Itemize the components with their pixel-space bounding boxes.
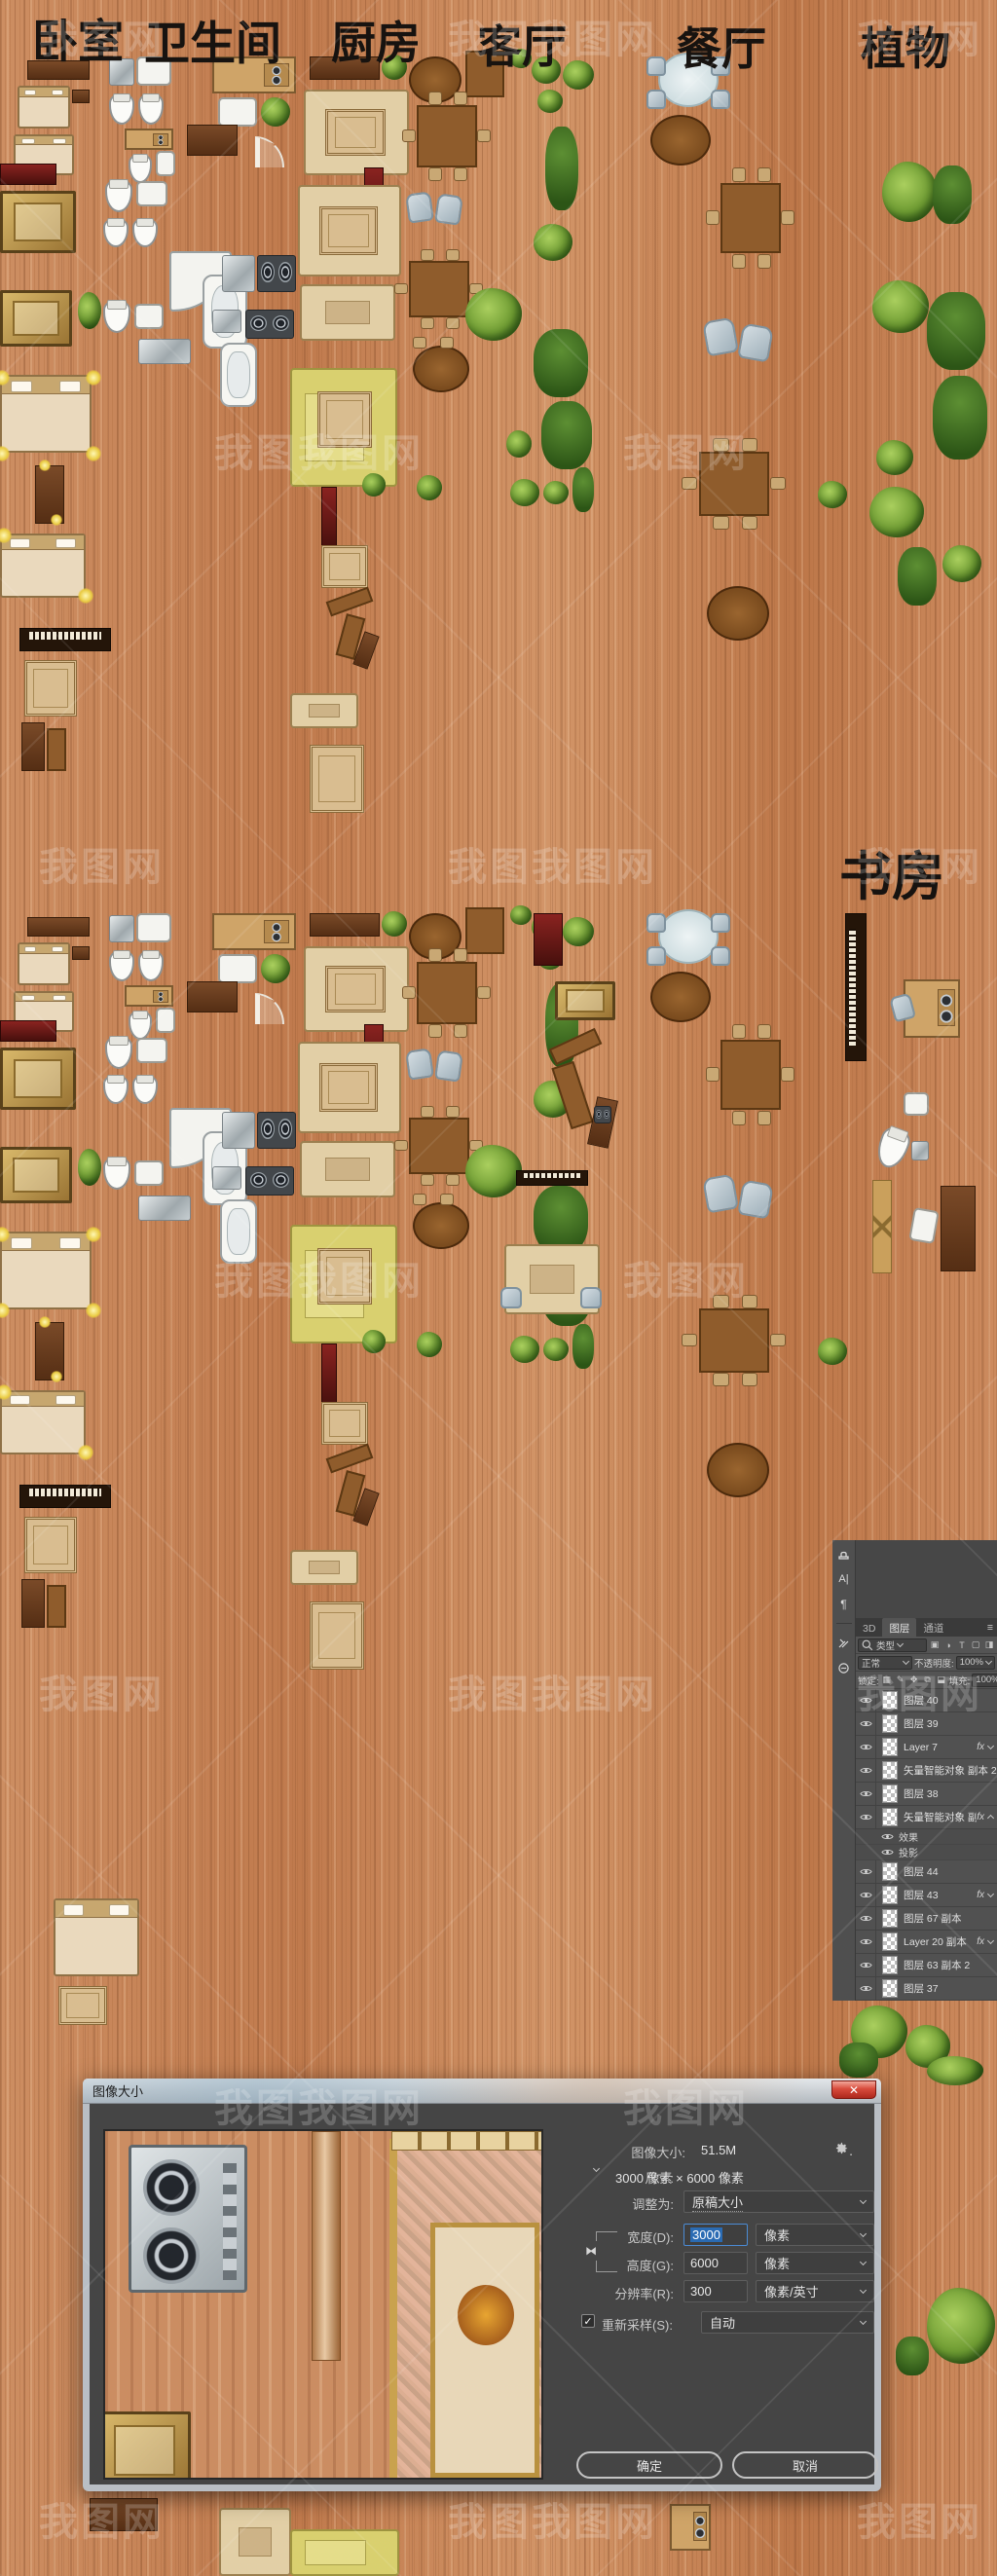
chair-sprite — [428, 167, 442, 180]
lamp-sprite — [86, 370, 101, 386]
glass-sprite — [658, 909, 719, 964]
chair-sprite — [477, 986, 491, 999]
darkwood-sprite — [187, 981, 238, 1012]
armch-sprite — [702, 1173, 739, 1213]
dining-sprite — [699, 1308, 769, 1373]
plant-sprite — [869, 487, 924, 537]
lamp-sprite — [78, 1445, 93, 1460]
armch-sprite — [434, 193, 463, 225]
layer-row[interactable]: 图层 43fx — [856, 1884, 997, 1907]
sofa-sprite — [219, 2508, 291, 2576]
white-sprite — [134, 304, 164, 329]
bush-sprite — [572, 1324, 594, 1369]
width-label: 宽度(D): — [547, 2227, 674, 2246]
white-sprite — [136, 913, 171, 942]
visibility-eye-icon[interactable] — [860, 1914, 872, 1923]
plant-sprite — [537, 90, 563, 113]
armch-sprite — [646, 90, 666, 109]
bush-sprite — [927, 292, 985, 370]
rug-sprite — [58, 1986, 107, 2025]
lamp-sprite — [0, 446, 10, 461]
label-dining-room: 餐厅 — [677, 14, 766, 78]
chair-sprite — [394, 283, 408, 295]
layer-row[interactable]: 图层 40 — [856, 1689, 997, 1712]
plant-sprite — [927, 2056, 983, 2085]
bush-sprite — [839, 2042, 878, 2078]
chair-sprite — [440, 337, 454, 349]
resolution-unit-dropdown[interactable]: 像素/英寸 — [756, 2280, 874, 2302]
preview-door-post — [312, 2131, 341, 2361]
layer-row[interactable]: 图层 44 — [856, 1860, 997, 1884]
layer-fx-badge[interactable]: fx — [977, 1936, 997, 1947]
layer-thumbnail[interactable] — [882, 1761, 898, 1780]
height-unit-dropdown[interactable]: 像素 — [756, 2252, 874, 2274]
chair-sprite — [770, 477, 786, 491]
bush-sprite — [545, 127, 578, 210]
chair-sprite — [428, 948, 442, 961]
chair-sprite — [713, 438, 728, 452]
toilet-sprite — [103, 300, 130, 333]
lamp-sprite — [86, 1303, 101, 1318]
stove-sprite — [257, 255, 296, 292]
opacity-label: 不透明度: — [914, 1656, 954, 1670]
tub-sprite — [220, 343, 257, 407]
darkwood-sprite — [72, 946, 90, 960]
lamp-sprite — [51, 514, 62, 526]
chair-sprite — [402, 129, 416, 142]
paragraph-panel-icon[interactable]: ¶ — [835, 1597, 853, 1612]
ornate-sprite — [0, 191, 76, 253]
lamp-sprite — [0, 1303, 10, 1318]
visibility-eye-icon[interactable] — [860, 1766, 872, 1775]
chair-sprite — [770, 1334, 786, 1347]
darkwood-sprite — [21, 1579, 45, 1628]
layer-thumbnail[interactable] — [882, 1956, 898, 1974]
preview-carpet — [389, 2139, 543, 2480]
layer-row[interactable]: 矢量智能对象 副本 2 — [856, 1759, 997, 1783]
plant-sprite — [818, 1338, 847, 1365]
smudge-tool-icon[interactable] — [835, 1660, 853, 1675]
resample-dropdown[interactable]: 自动 — [701, 2311, 874, 2334]
chair-sprite — [454, 92, 467, 104]
fill-dropdown[interactable]: 100% — [972, 1674, 997, 1687]
steel-sprite — [222, 1112, 255, 1149]
pianoh-sprite — [516, 1170, 588, 1186]
armch-sprite — [434, 1049, 463, 1082]
darkwood-sprite — [21, 722, 45, 771]
stove-sprite — [245, 310, 294, 339]
steel-sprite — [212, 1166, 241, 1190]
chair-sprite — [757, 1024, 771, 1039]
filter-type-dropdown[interactable]: 类型 — [858, 1638, 927, 1652]
chair-sprite — [446, 1174, 460, 1186]
label-bedroom: 卧室 — [32, 4, 124, 71]
bed-sprite — [0, 1390, 86, 1454]
steel-sprite — [109, 915, 134, 942]
wx-sprite — [872, 1180, 892, 1273]
photoshop-workspace: 卧室 卫生间 厨房 客厅 餐厅 植物 书房 A| ¶ 3D — [0, 0, 997, 2576]
armch-sprite — [580, 1287, 602, 1308]
layer-thumbnail[interactable] — [882, 1932, 898, 1951]
filter-adjustment-icon[interactable]: ◑ — [942, 1639, 954, 1651]
chair-sprite — [477, 129, 491, 142]
dining-sprite — [409, 261, 469, 317]
filter-type-icon[interactable]: T — [956, 1639, 968, 1651]
chair-sprite — [682, 1334, 697, 1347]
bed-sprite — [0, 375, 92, 453]
ok-button[interactable]: 确定 — [576, 2451, 722, 2479]
fill-label: 填充: — [949, 1674, 971, 1687]
visibility-eye-icon[interactable] — [881, 1848, 894, 1857]
darkwood-sprite — [27, 917, 90, 937]
roundt-sprite — [707, 586, 769, 641]
plant-sprite — [417, 1332, 442, 1357]
darkwood-sprite — [310, 913, 380, 937]
chair-sprite — [732, 1111, 746, 1125]
layer-row[interactable]: 图层 37 — [856, 1977, 997, 2001]
tab-3d[interactable]: 3D — [856, 1618, 882, 1637]
toilet-sprite — [138, 93, 164, 125]
lamp-sprite — [86, 446, 101, 461]
chair-sprite — [732, 254, 746, 269]
armch-sprite — [646, 946, 666, 966]
layer-thumbnail[interactable] — [882, 1979, 898, 1998]
bed-sprite — [0, 1232, 92, 1309]
lock-all-icon[interactable]: ⬓ — [936, 1674, 947, 1686]
lock-artboard-icon[interactable]: ⧉ — [922, 1674, 934, 1686]
preview-stove — [129, 2145, 247, 2293]
visibility-eye-icon[interactable] — [881, 1832, 894, 1841]
layer-fx-badge[interactable]: fx — [977, 1890, 997, 1900]
dialog-body: 图像大小: 51.5M . 尺寸: 3000 像素 × 6000 像素 调整为:… — [90, 2104, 874, 2484]
layer-thumbnail[interactable] — [882, 1691, 898, 1710]
bush-sprite — [898, 547, 937, 606]
redcab-sprite — [534, 913, 563, 966]
counter-sprite — [670, 2504, 711, 2551]
white-sprite — [904, 1092, 929, 1116]
chair-sprite — [742, 438, 757, 452]
chair-sprite — [742, 516, 757, 530]
rug-sprite — [24, 1517, 77, 1573]
plant-sprite — [876, 440, 913, 475]
toilet-sprite — [132, 1075, 158, 1104]
chair-sprite — [682, 477, 697, 491]
layer-row[interactable]: 矢量智能对象 副本fx — [856, 1806, 997, 1829]
counter-sprite — [212, 913, 296, 950]
width-unit-dropdown[interactable]: 像素 — [756, 2224, 874, 2246]
steel-sprite — [138, 1196, 191, 1221]
layer-fx-badge[interactable]: fx — [977, 1812, 997, 1822]
chair-sprite — [706, 1067, 720, 1082]
layer-thumbnail[interactable] — [882, 1808, 898, 1826]
armch-sprite — [737, 1179, 774, 1219]
dialog-titlebar[interactable]: 图像大小 ✕ — [83, 2079, 881, 2104]
close-icon[interactable]: ✕ — [831, 2080, 876, 2099]
lock-label: 锁定: — [858, 1674, 879, 1687]
resolution-label: 分辨率(R): — [547, 2284, 674, 2302]
character-panel-icon[interactable]: A| — [835, 1571, 853, 1587]
label-kitchen: 厨房 — [331, 8, 421, 72]
dimensions-value: 3000 像素 × 6000 像素 — [615, 2168, 744, 2187]
plant-sprite — [78, 292, 101, 329]
rug-sprite — [24, 660, 77, 717]
layer-thumbnail[interactable] — [882, 1886, 898, 1904]
visibility-eye-icon[interactable] — [860, 1937, 872, 1946]
height-label: 高度(G): — [547, 2256, 674, 2274]
stove-sprite — [245, 1166, 294, 1196]
layer-row[interactable]: 图层 39 — [856, 1712, 997, 1736]
chair-sprite — [781, 1067, 794, 1082]
roundt-sprite — [413, 1202, 469, 1249]
plant-sprite — [465, 1145, 522, 1197]
visibility-eye-icon[interactable] — [860, 1719, 872, 1728]
armch-sprite — [702, 316, 739, 356]
layer-thumbnail[interactable] — [882, 1909, 898, 1928]
toilet-sprite — [109, 93, 134, 125]
image-size-dialog: 图像大小 ✕ 图像大小: 51.5M — [83, 2079, 881, 2491]
layer-row[interactable]: Layer 7fx — [856, 1736, 997, 1759]
armch-sprite — [500, 1287, 522, 1308]
sofa-sprite — [290, 693, 358, 728]
visibility-eye-icon[interactable] — [860, 1789, 872, 1798]
ornate-sprite — [0, 1048, 76, 1110]
image-size-value: 51.5M — [701, 2143, 736, 2157]
bush-sprite — [896, 2337, 929, 2375]
visibility-eye-icon[interactable] — [860, 1813, 872, 1822]
toilet-sprite — [103, 1157, 130, 1190]
table-sprite — [47, 1585, 66, 1628]
divider — [836, 1623, 852, 1624]
search-icon — [862, 1639, 873, 1651]
table-sprite — [465, 907, 504, 954]
plant-sprite — [942, 545, 981, 582]
armch-sprite — [405, 191, 434, 223]
armch-sprite — [711, 913, 730, 933]
panel-dock-strip: A| ¶ — [832, 1540, 856, 2001]
plant-sprite — [510, 905, 532, 925]
layer-thumbnail[interactable] — [882, 1862, 898, 1881]
chair-sprite — [440, 1194, 454, 1205]
chair-sprite — [781, 210, 794, 225]
sofa-sprite — [300, 284, 395, 341]
armch-sprite — [646, 913, 666, 933]
chair-sprite — [413, 337, 426, 349]
redcab-sprite — [0, 1020, 56, 1042]
dining-sprite — [417, 105, 477, 167]
layer-thumbnail[interactable] — [882, 1785, 898, 1803]
steel-sprite — [138, 339, 191, 364]
visibility-eye-icon[interactable] — [860, 1984, 872, 1993]
lock-pixels-icon[interactable]: ✎ — [895, 1674, 906, 1686]
gear-icon[interactable]: . — [834, 2141, 853, 2158]
plant-sprite — [872, 280, 929, 333]
layer-row[interactable]: 图层 67 副本 — [856, 1907, 997, 1931]
plant-sprite — [543, 481, 569, 504]
chair-sprite — [713, 1373, 728, 1386]
layer-fx-badge[interactable]: fx — [977, 1742, 997, 1752]
width-input[interactable]: 3000 — [683, 2224, 748, 2246]
bed-sprite — [54, 1898, 139, 1976]
label-plants: 植物 — [861, 14, 950, 78]
rug-sprite — [321, 545, 368, 588]
chair-sprite — [421, 249, 434, 261]
bush-sprite — [572, 467, 594, 512]
plant-sprite — [882, 162, 937, 222]
fit-to-label: 调整为: — [547, 2194, 674, 2213]
chair-sprite — [742, 1295, 757, 1308]
panel-empty-area — [856, 1540, 997, 1618]
toilet-sprite — [129, 1011, 152, 1040]
chair-sprite — [446, 249, 460, 261]
white-sprite — [218, 954, 257, 983]
height-input[interactable]: 6000 — [683, 2252, 748, 2274]
darkwood-sprite — [90, 2498, 158, 2531]
filter-smart-object-icon[interactable]: ◨ — [983, 1639, 995, 1651]
rug-sprite — [317, 1248, 372, 1305]
rug-sprite — [325, 966, 386, 1012]
chair-sprite — [757, 254, 771, 269]
chair-sprite — [454, 167, 467, 180]
layer-thumbnail[interactable] — [882, 1738, 898, 1756]
layer-filter-row: 类型 ▣ ◑ T ▢ ◨ — [856, 1637, 997, 1654]
visibility-eye-icon[interactable] — [860, 1696, 872, 1705]
steel-sprite — [222, 255, 255, 292]
redcab-sprite — [321, 1343, 337, 1406]
chair-sprite — [732, 1024, 746, 1039]
darkwood-sprite — [187, 125, 238, 156]
bush-sprite — [534, 329, 588, 397]
plant-sprite — [818, 481, 847, 508]
lock-position-icon[interactable]: ✥ — [908, 1674, 920, 1686]
visibility-eye-icon[interactable] — [860, 1891, 872, 1899]
armch-sprite — [711, 90, 730, 109]
dining-sprite — [720, 183, 781, 253]
toilet-sprite — [103, 1075, 129, 1104]
chair-sprite — [732, 167, 746, 182]
redcab-sprite — [0, 164, 56, 185]
roundt-sprite — [650, 972, 711, 1022]
plant-sprite — [506, 430, 532, 458]
clone-stamp-tool-icon[interactable] — [835, 1546, 853, 1562]
chair-sprite — [394, 1140, 408, 1152]
armch-sprite — [646, 56, 666, 76]
bed-sprite — [0, 534, 86, 598]
opacity-dropdown[interactable]: 100% — [956, 1656, 995, 1670]
bed-sprite — [18, 86, 70, 129]
roundt-sprite — [707, 1443, 769, 1497]
white-sprite — [908, 1207, 940, 1244]
layer-effect-row[interactable]: 效果 — [856, 1829, 997, 1845]
plant-sprite — [927, 2288, 995, 2364]
stove-sprite — [257, 1112, 296, 1149]
plant-sprite — [510, 1336, 539, 1363]
plant-sprite — [534, 224, 572, 261]
redcab-sprite — [321, 487, 337, 549]
lamp-sprite — [51, 1371, 62, 1382]
visibility-eye-icon[interactable] — [860, 1961, 872, 1969]
chair-sprite — [446, 317, 460, 329]
label-living-room: 客厅 — [477, 12, 567, 76]
plant-sprite — [465, 288, 522, 341]
white-sprite — [136, 181, 167, 206]
chair-sprite — [413, 1194, 426, 1205]
lamp-sprite — [39, 460, 51, 471]
plant-sprite — [563, 60, 594, 90]
plant-sprite — [417, 475, 442, 500]
rug-sprite — [317, 391, 372, 448]
filter-shape-icon[interactable]: ▢ — [970, 1639, 981, 1651]
plant-sprite — [563, 917, 594, 946]
white-sprite — [136, 1038, 167, 1063]
plant-sprite — [362, 1330, 386, 1353]
chair-sprite — [713, 516, 728, 530]
lamp-sprite — [78, 588, 93, 604]
sofa-sprite — [300, 1141, 395, 1197]
chair-sprite — [713, 1295, 728, 1308]
sofa-sprite — [290, 1550, 358, 1585]
chair-sprite — [421, 317, 434, 329]
lock-transparent-icon[interactable]: ▦ — [881, 1674, 893, 1686]
armch-sprite — [711, 946, 730, 966]
layer-row[interactable]: 图层 63 副本 2 — [856, 1954, 997, 1977]
armch-sprite — [737, 322, 774, 362]
bed-sprite — [18, 942, 70, 985]
layer-row[interactable]: 图层 38 — [856, 1783, 997, 1806]
toilet-sprite — [138, 950, 164, 981]
counter-sprite — [125, 129, 173, 150]
filter-pixel-icon[interactable]: ▣ — [929, 1639, 941, 1651]
tub-sprite — [220, 1199, 257, 1264]
chair-sprite — [742, 1373, 757, 1386]
armch-sprite — [405, 1048, 434, 1080]
chair-sprite — [402, 986, 416, 999]
doorarc-sprite — [255, 993, 284, 1024]
fit-to-dropdown[interactable]: 原稿大小 — [683, 2190, 874, 2213]
lamp-sprite — [86, 1227, 101, 1242]
tab-channels[interactable]: 通道 — [916, 1618, 950, 1637]
layer-effect-row[interactable]: 投影 — [856, 1845, 997, 1860]
visibility-eye-icon[interactable] — [860, 1867, 872, 1876]
plant-sprite — [78, 1149, 101, 1186]
chair-sprite — [421, 1174, 434, 1186]
rug-sprite — [310, 745, 364, 813]
image-preview[interactable] — [103, 2129, 543, 2480]
chair-sprite — [757, 167, 771, 182]
resolution-input[interactable]: 300 — [683, 2280, 748, 2302]
layer-row[interactable]: Layer 20 副本fx — [856, 1931, 997, 1954]
blend-mode-dropdown[interactable]: 正常 — [858, 1656, 912, 1670]
roundt-sprite — [413, 346, 469, 392]
dining-sprite — [699, 452, 769, 516]
layer-thumbnail[interactable] — [882, 1714, 898, 1733]
doorarc-sprite — [255, 136, 284, 167]
plant-sprite — [543, 1338, 569, 1361]
toilet-sprite — [105, 1036, 132, 1069]
steel-sprite — [212, 310, 241, 333]
counter-sprite — [125, 985, 173, 1007]
toilet-sprite — [132, 218, 158, 247]
panel-menu-icon[interactable]: ≡ — [983, 1618, 997, 1637]
ysofa-sprite — [290, 2529, 399, 2576]
toilet-sprite — [129, 154, 152, 183]
tab-layers[interactable]: 图层 — [882, 1618, 916, 1637]
resample-checkbox[interactable]: ✓ — [581, 2314, 595, 2328]
tools-panel-icon[interactable] — [835, 1635, 853, 1650]
ornate-sprite — [0, 290, 72, 347]
cancel-button[interactable]: 取消 — [732, 2451, 878, 2479]
rug-sprite — [325, 109, 386, 156]
visibility-eye-icon[interactable] — [860, 1743, 872, 1751]
